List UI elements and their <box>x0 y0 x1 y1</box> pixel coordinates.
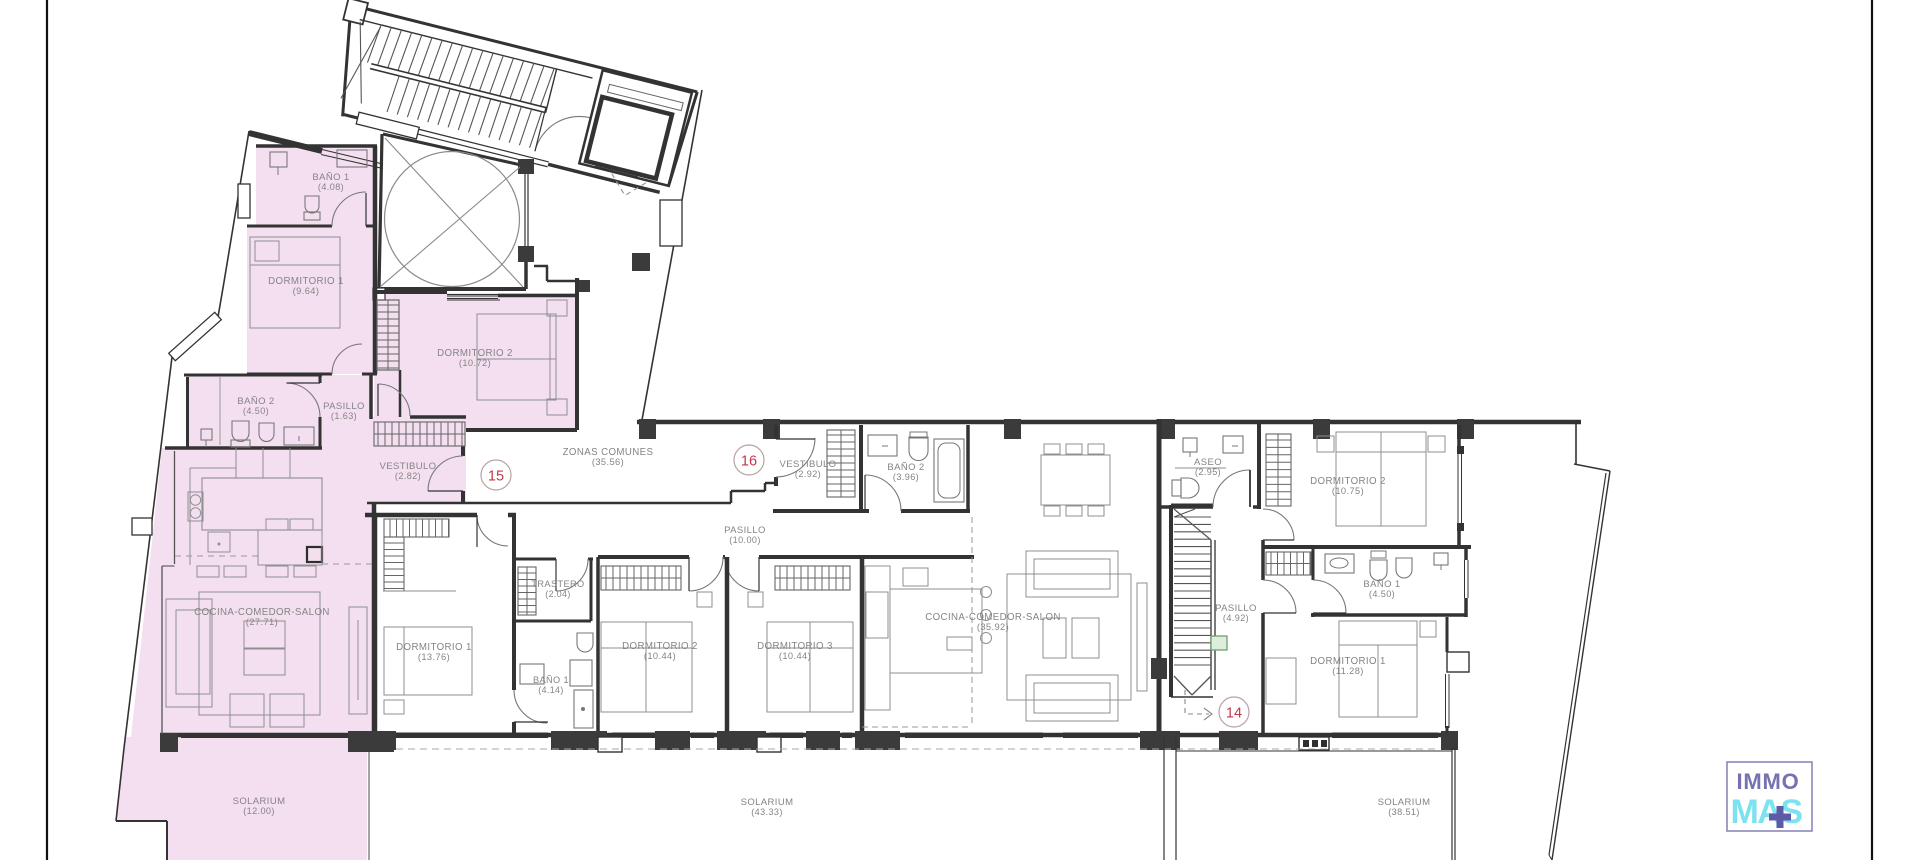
svg-text:(2.82): (2.82) <box>395 471 421 481</box>
svg-text:IMMO: IMMO <box>1736 769 1799 794</box>
svg-text:(10.00): (10.00) <box>729 535 761 545</box>
svg-text:(4.50): (4.50) <box>1369 589 1395 599</box>
svg-text:BAÑO 1: BAÑO 1 <box>533 675 569 685</box>
svg-text:(9.64): (9.64) <box>293 286 320 296</box>
svg-text:(3.96): (3.96) <box>893 472 919 482</box>
svg-text:(35.92): (35.92) <box>977 622 1009 632</box>
svg-text:(2.95): (2.95) <box>1195 467 1221 477</box>
svg-text:(4.92): (4.92) <box>1223 613 1249 623</box>
svg-text:(12.00): (12.00) <box>243 806 275 816</box>
svg-text:(13.76): (13.76) <box>418 652 450 662</box>
svg-text:(4.50): (4.50) <box>243 406 269 416</box>
svg-text:(10.44): (10.44) <box>779 651 811 661</box>
svg-text:(2.04): (2.04) <box>545 589 570 599</box>
svg-text:15: 15 <box>488 469 504 485</box>
svg-text:(27.71): (27.71) <box>246 617 278 627</box>
svg-text:(4.14): (4.14) <box>538 685 563 695</box>
svg-text:14: 14 <box>1226 706 1242 722</box>
svg-text:(10.75): (10.75) <box>1332 486 1364 496</box>
svg-text:(11.28): (11.28) <box>1332 666 1364 676</box>
svg-text:(38.51): (38.51) <box>1388 807 1420 817</box>
svg-text:(4.08): (4.08) <box>318 182 344 192</box>
svg-text:(35.56): (35.56) <box>592 457 624 467</box>
svg-text:(2.92): (2.92) <box>795 469 821 479</box>
svg-text:MAS: MAS <box>1730 793 1802 831</box>
svg-text:16: 16 <box>741 454 757 470</box>
svg-text:(10.44): (10.44) <box>644 651 676 661</box>
svg-text:(43.33): (43.33) <box>751 807 783 817</box>
svg-text:(10.72): (10.72) <box>459 358 491 368</box>
svg-text:TRASTERO: TRASTERO <box>531 579 584 589</box>
svg-text:(1.63): (1.63) <box>331 411 357 421</box>
